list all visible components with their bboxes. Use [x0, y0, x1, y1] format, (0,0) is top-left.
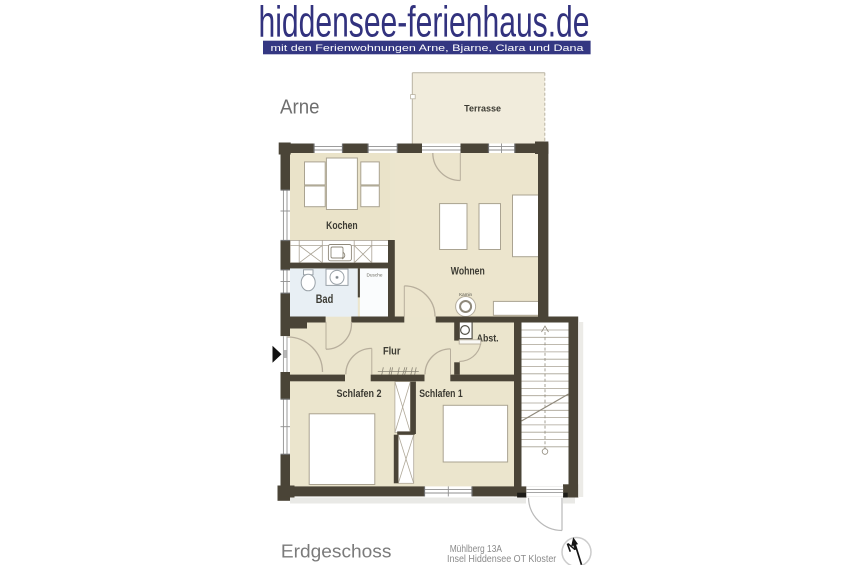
svg-text:Erdgeschoss: Erdgeschoss — [281, 542, 392, 562]
svg-text:Schlafen 1: Schlafen 1 — [419, 388, 463, 400]
svg-text:Wohnen: Wohnen — [451, 266, 485, 278]
svg-text:Insel Hiddensee OT Kloster: Insel Hiddensee OT Kloster — [447, 553, 557, 565]
svg-text:Bad: Bad — [316, 294, 334, 306]
svg-text:Flur: Flur — [383, 346, 401, 358]
svg-text:mit den Ferienwohnungen Arne,: mit den Ferienwohnungen Arne, Bjarne, Cl… — [271, 43, 585, 54]
svg-text:hiddensee-ferienhaus.de: hiddensee-ferienhaus.de — [259, 0, 590, 47]
svg-text:Kochen: Kochen — [326, 220, 358, 232]
svg-text:Dusche: Dusche — [367, 273, 384, 278]
svg-text:Arne: Arne — [280, 96, 320, 119]
svg-text:Schlafen 2: Schlafen 2 — [337, 388, 382, 400]
svg-text:Terrasse: Terrasse — [464, 104, 501, 115]
